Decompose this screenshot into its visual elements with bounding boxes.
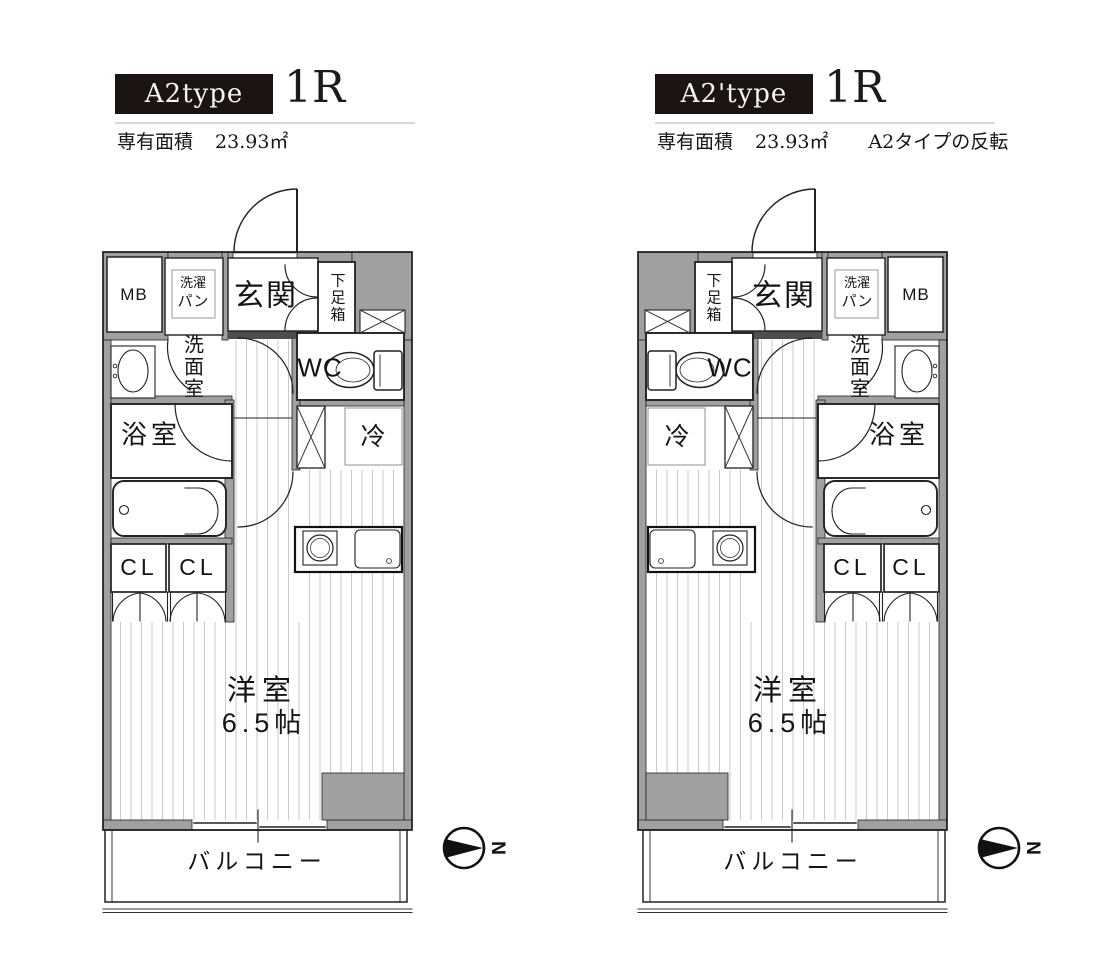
plan-a2-type-label: A2type — [145, 79, 244, 109]
room-label-washroom: 洗面室 — [844, 334, 873, 400]
compass-north-letter: N — [486, 841, 508, 855]
room-label-balcony: バルコニー — [187, 849, 327, 873]
laundry-line2: パン — [842, 292, 873, 312]
room-label-shoe-box: 下足箱 — [327, 273, 348, 324]
room-label-balcony: バルコニー — [723, 849, 863, 873]
room-label-wc: WC — [707, 354, 752, 381]
room-label-shoe-box: 下足箱 — [703, 273, 724, 324]
floor-plan-a2-mirrored — [638, 189, 1019, 913]
mirror-note: A2タイプの反転 — [868, 127, 1008, 154]
plan-a2-type-box: A2type — [115, 74, 273, 114]
room-label-entrance: 玄関 — [752, 280, 816, 312]
area-label: 専有面積 — [657, 127, 733, 154]
plan-a2-layout-label: 1R — [284, 66, 345, 110]
floorplan-sheet: { "plans": [ { "type_label": "A2type", "… — [0, 0, 1100, 957]
room-label-main-room-size: 6.5帖 — [748, 709, 833, 737]
plan-a2-area-row: 専有面積 23.93㎡ — [117, 127, 288, 154]
room-label-main-room-size: 6.5帖 — [222, 709, 307, 737]
area-value: 23.93㎡ — [215, 127, 288, 154]
laundry-line1: 洗濯 — [842, 274, 873, 292]
plan-a2p-divider — [655, 122, 995, 124]
compass-north-letter: N — [1021, 841, 1043, 855]
laundry-line2: パン — [178, 292, 209, 312]
room-label-closet: CL — [892, 555, 929, 579]
room-label-closet: CL — [120, 555, 157, 579]
plan-a2p-type-label: A2'type — [681, 79, 788, 109]
plan-a2p-area-row: 専有面積 23.93㎡ A2タイプの反転 — [657, 127, 1008, 154]
room-label-laundry-pan: 洗濯 パン — [178, 274, 209, 312]
plan-a2p-type-box: A2'type — [655, 74, 813, 114]
plan-a2p-layout-label: 1R — [824, 66, 885, 110]
room-label-main-room: 洋室 — [753, 676, 823, 706]
room-label-closet: CL — [179, 555, 216, 579]
room-label-bath: 浴室 — [869, 421, 929, 448]
room-label-wc: WC — [297, 354, 342, 381]
room-label-bath: 浴室 — [121, 421, 181, 448]
room-label-fridge: 冷 — [360, 424, 385, 450]
area-label: 専有面積 — [117, 127, 193, 154]
room-label-closet: CL — [833, 555, 870, 579]
plan-a2-divider — [115, 122, 415, 124]
room-label-laundry-pan: 洗濯 パン — [842, 274, 873, 312]
area-value: 23.93㎡ — [755, 127, 828, 154]
room-label-fridge: 冷 — [664, 424, 689, 450]
room-label-entrance: 玄関 — [234, 280, 298, 312]
room-label-mb: MB — [902, 286, 930, 304]
laundry-line1: 洗濯 — [178, 274, 209, 292]
room-label-washroom: 洗面室 — [178, 334, 207, 400]
room-label-mb: MB — [120, 286, 148, 304]
room-label-main-room: 洋室 — [227, 676, 297, 706]
